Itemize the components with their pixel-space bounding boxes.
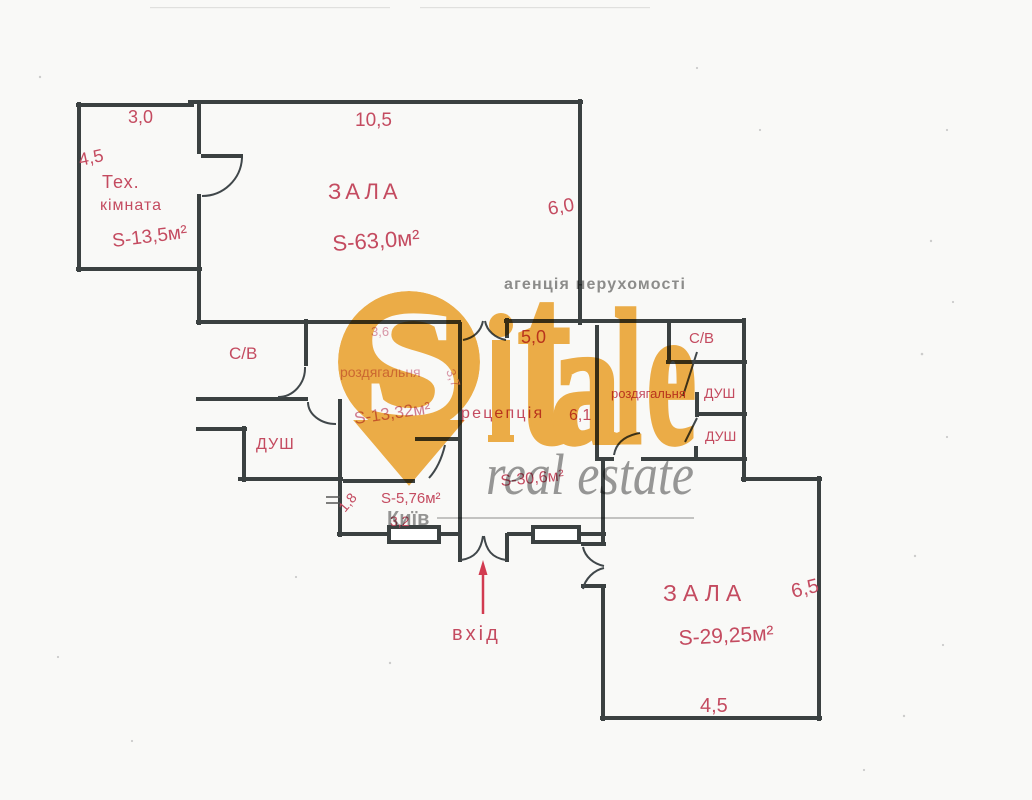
svg-text:real estate: real estate <box>486 442 694 507</box>
svg-text:S-5,76м²: S-5,76м² <box>381 490 441 507</box>
svg-text:С/В: С/В <box>229 344 257 363</box>
svg-text:вхід: вхід <box>452 623 501 645</box>
svg-text:4,5: 4,5 <box>700 695 728 717</box>
svg-text:ЗАЛА: ЗАЛА <box>663 580 747 606</box>
svg-text:Тех.: Тех. <box>102 172 140 192</box>
svg-text:Київ: Київ <box>387 508 429 530</box>
svg-text:10,5: 10,5 <box>355 110 392 131</box>
svg-text:ДУШ: ДУШ <box>256 436 295 453</box>
svg-text:ДУШ: ДУШ <box>705 428 736 444</box>
svg-text:кімната: кімната <box>100 197 162 214</box>
svg-text:ЗАЛА: ЗАЛА <box>328 179 402 204</box>
svg-text:3,0: 3,0 <box>128 107 153 127</box>
svg-text:ДУШ: ДУШ <box>704 385 735 401</box>
